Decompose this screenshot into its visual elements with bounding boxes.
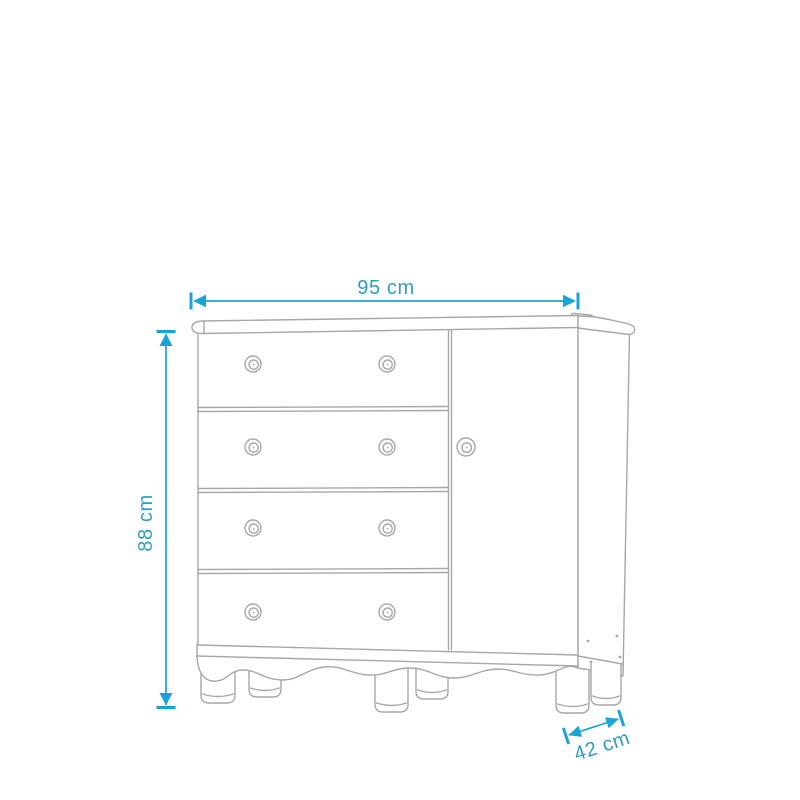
depth-dimension: 42 cm — [563, 710, 632, 766]
screw-dot — [619, 656, 622, 659]
cabinet-front — [198, 327, 578, 655]
screw-dot — [590, 661, 593, 664]
dimension-diagram: 95 cm 88 cm 42 cm — [0, 0, 800, 800]
arrow-up-icon — [160, 334, 173, 347]
drawer-separator-line — [198, 573, 449, 574]
height-label: 88 cm — [135, 494, 157, 551]
height-dimension: 88 cm — [135, 332, 176, 708]
arrow-down-icon — [160, 693, 173, 706]
width-dimension: 95 cm — [191, 277, 578, 310]
diagram-canvas: 95 cm 88 cm 42 cm — [0, 0, 800, 800]
screw-dot — [587, 640, 590, 643]
side-panel — [578, 327, 630, 676]
screw-dot — [616, 635, 619, 638]
width-label: 95 cm — [357, 277, 414, 299]
arrow-depth-near-icon — [567, 726, 582, 741]
arrow-depth-far-icon — [605, 713, 620, 728]
arrow-right-icon — [563, 295, 576, 307]
depth-far-cap — [619, 710, 624, 726]
depth-near-cap — [563, 728, 568, 744]
arrow-left-icon — [193, 295, 206, 307]
dresser-drawing — [192, 313, 635, 713]
drawer-separator-line — [198, 569, 449, 570]
